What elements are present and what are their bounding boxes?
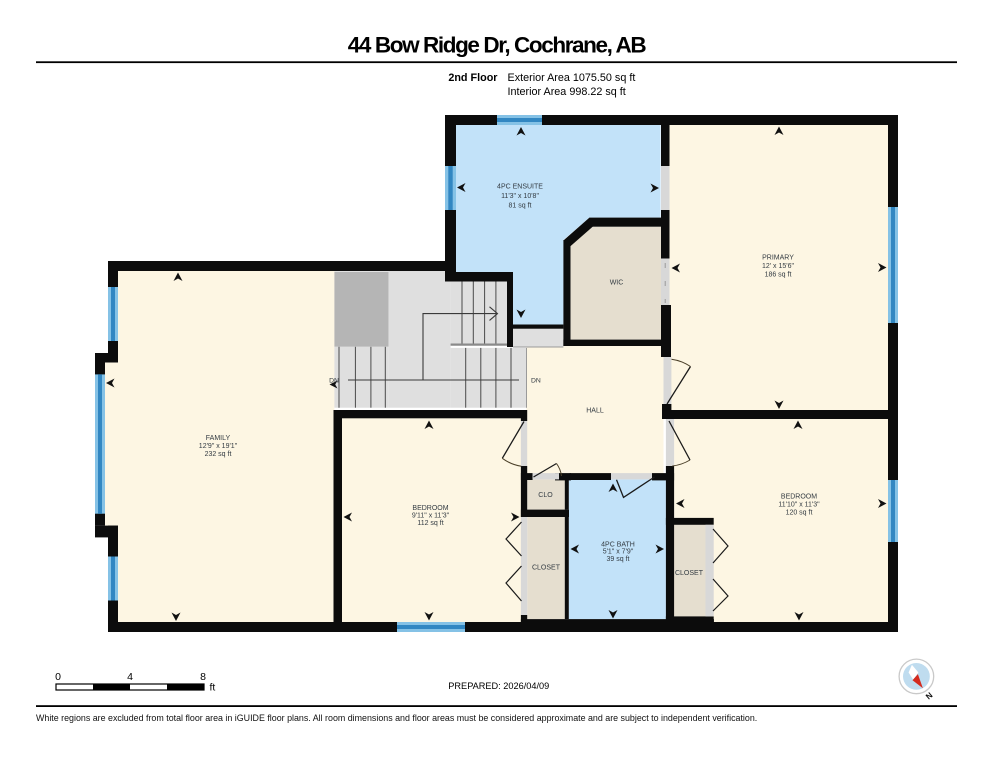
svg-text:2nd Floor: 2nd Floor bbox=[448, 72, 498, 84]
svg-text:CLOSET: CLOSET bbox=[532, 565, 561, 572]
svg-text:120 sq ft: 120 sq ft bbox=[786, 510, 813, 517]
svg-text:CLOSET: CLOSET bbox=[675, 570, 704, 577]
svg-text:112 sq ft: 112 sq ft bbox=[417, 520, 443, 527]
svg-text:FAMILY: FAMILY bbox=[206, 435, 231, 442]
svg-text:12'9" x 19'1": 12'9" x 19'1" bbox=[199, 443, 238, 450]
svg-text:39 sq ft: 39 sq ft bbox=[607, 556, 630, 563]
svg-text:4PC ENSUITE: 4PC ENSUITE bbox=[497, 184, 543, 191]
svg-text:11'10" x 11'3": 11'10" x 11'3" bbox=[778, 502, 820, 509]
svg-text:44 Bow Ridge Dr, Cochrane, AB: 44 Bow Ridge Dr, Cochrane, AB bbox=[348, 33, 647, 58]
svg-text:WIC: WIC bbox=[610, 280, 624, 287]
svg-text:N: N bbox=[924, 691, 934, 702]
svg-text:DN: DN bbox=[531, 378, 541, 385]
svg-text:8: 8 bbox=[200, 671, 206, 683]
svg-text:81 sq ft: 81 sq ft bbox=[509, 203, 532, 210]
svg-text:White regions are excluded fro: White regions are excluded from total fl… bbox=[36, 713, 757, 723]
svg-text:BEDROOM: BEDROOM bbox=[412, 505, 448, 512]
svg-text:Interior Area 998.22 sq ft: Interior Area 998.22 sq ft bbox=[508, 86, 626, 98]
svg-text:DN: DN bbox=[329, 378, 339, 385]
svg-text:ft: ft bbox=[210, 682, 216, 694]
svg-text:HALL: HALL bbox=[586, 408, 604, 415]
svg-text:Exterior Area 1075.50 sq ft: Exterior Area 1075.50 sq ft bbox=[508, 72, 636, 84]
svg-text:4PC BATH: 4PC BATH bbox=[601, 542, 635, 549]
svg-text:BEDROOM: BEDROOM bbox=[781, 494, 817, 501]
svg-text:PRIMARY: PRIMARY bbox=[762, 255, 794, 262]
svg-text:4: 4 bbox=[127, 671, 133, 683]
svg-text:9'11" x 11'3": 9'11" x 11'3" bbox=[412, 513, 450, 520]
svg-text:11'3" x 10'8": 11'3" x 10'8" bbox=[501, 193, 539, 200]
svg-text:5'1" x 7'9": 5'1" x 7'9" bbox=[603, 549, 634, 556]
svg-text:186 sq ft: 186 sq ft bbox=[765, 272, 792, 279]
svg-text:CLO: CLO bbox=[538, 492, 553, 499]
svg-text:PREPARED: 2026/04/09: PREPARED: 2026/04/09 bbox=[448, 681, 549, 691]
svg-text:232 sq ft: 232 sq ft bbox=[205, 451, 232, 458]
svg-text:0: 0 bbox=[55, 671, 61, 683]
svg-text:12' x 15'6": 12' x 15'6" bbox=[762, 263, 795, 270]
